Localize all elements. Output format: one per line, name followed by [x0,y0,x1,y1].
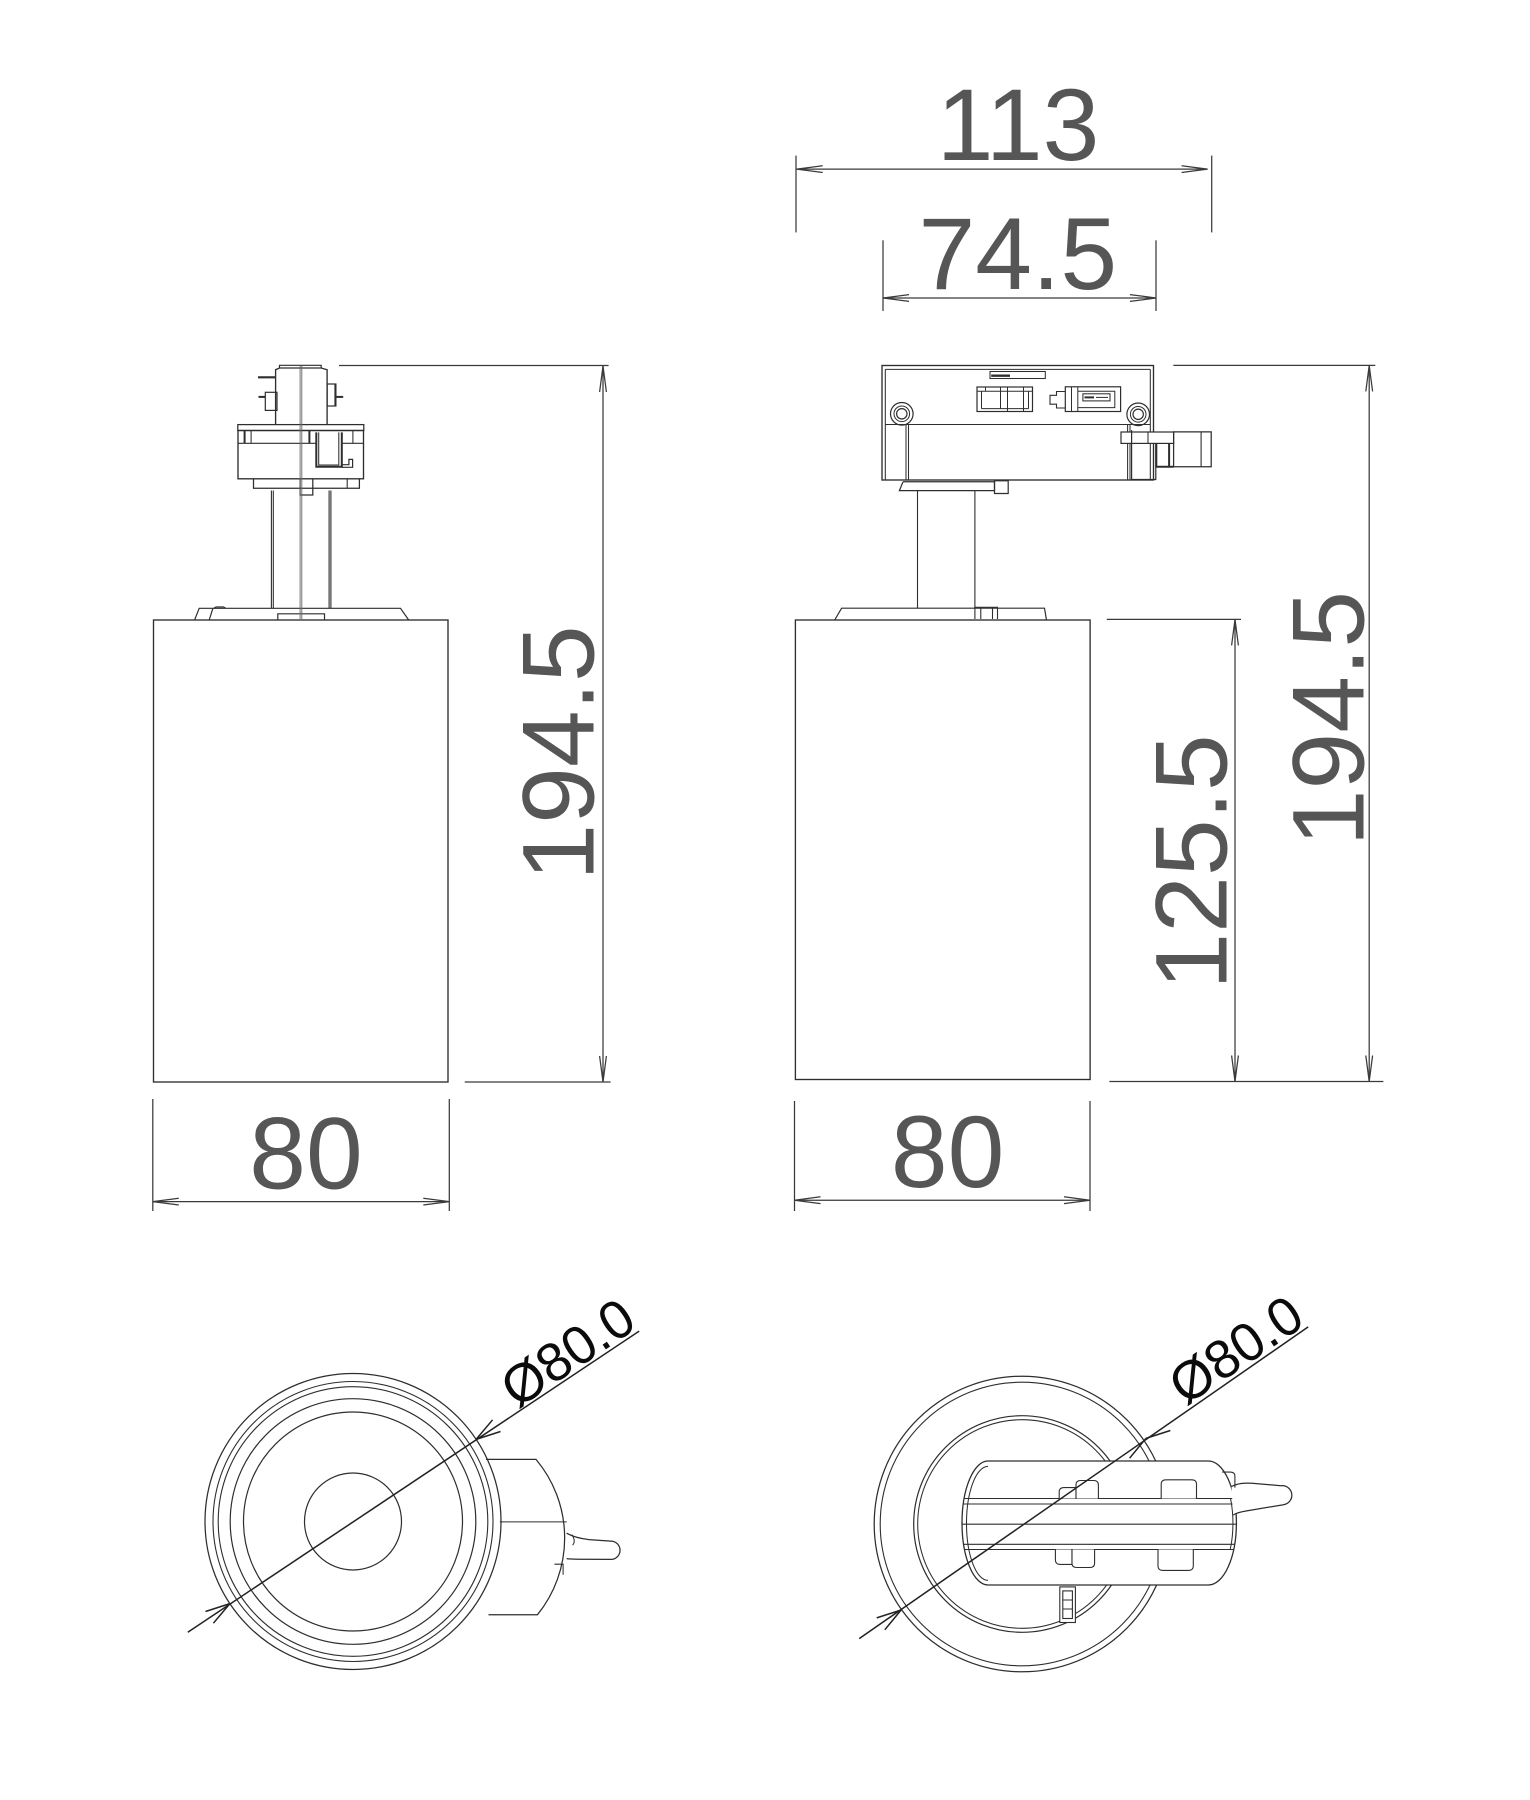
svg-text:194.5: 194.5 [502,625,616,880]
svg-text:80: 80 [891,1095,1004,1209]
svg-text:125.5: 125.5 [1134,734,1248,989]
svg-text:80: 80 [249,1097,362,1211]
svg-text:Ø80.0: Ø80.0 [490,1287,646,1419]
svg-text:194.5: 194.5 [1272,591,1386,846]
svg-text:74.5: 74.5 [919,197,1118,311]
svg-text:Ø80.0: Ø80.0 [1158,1284,1314,1416]
svg-text:113: 113 [937,68,1100,182]
